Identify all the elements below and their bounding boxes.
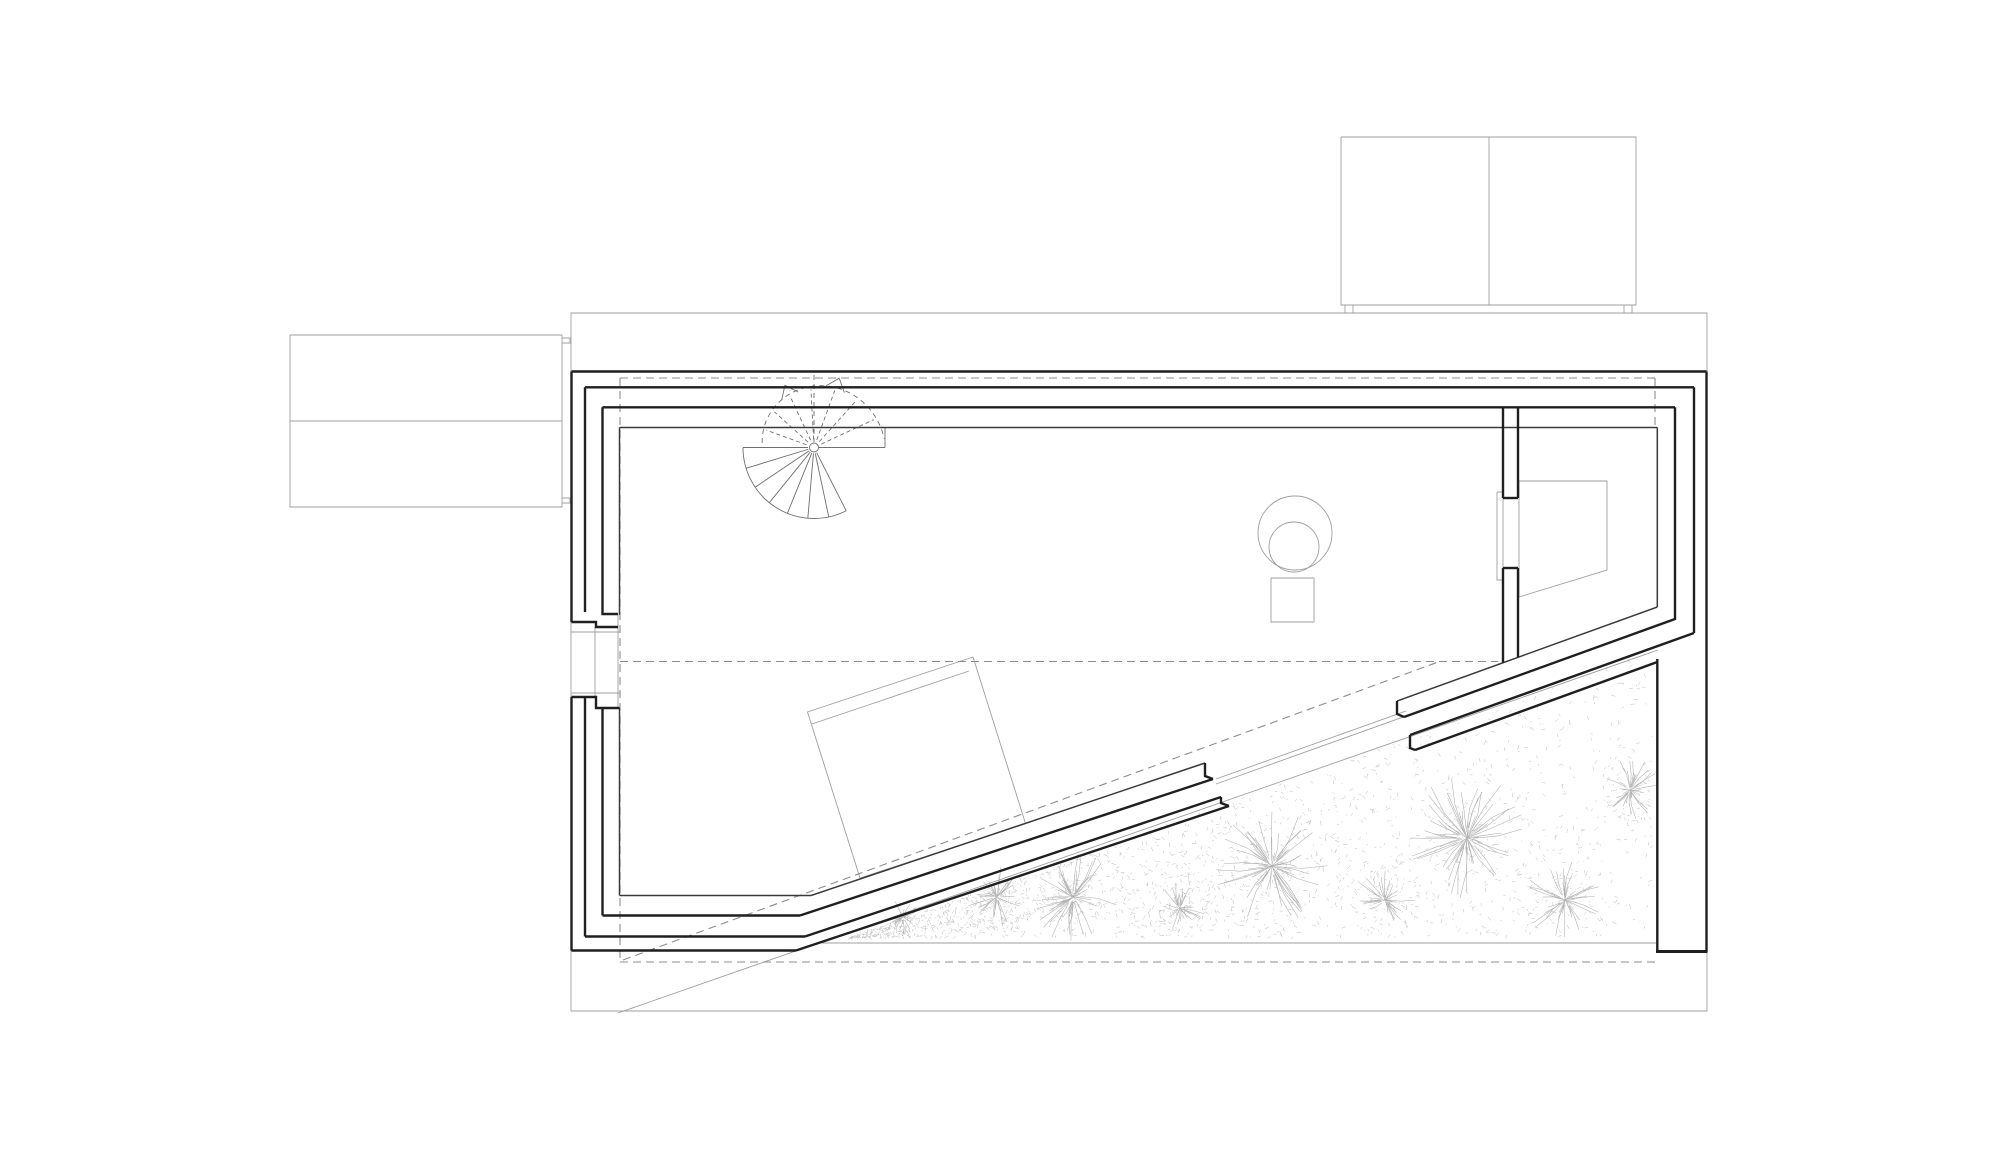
diagonal-wall-b-line3	[1404, 619, 1675, 717]
bed-platform-outline	[808, 657, 1026, 878]
stair-upper-flight-dashed-spiral	[762, 386, 884, 443]
floor-plan-page	[0, 0, 2000, 1150]
left-door-sill	[572, 697, 620, 708]
diagonal-wall-a-end-step1	[1205, 763, 1213, 779]
bed-platform-inner-edge	[812, 671, 969, 724]
left-door-head	[572, 622, 619, 627]
diagonal-wall-b-end-step1	[1397, 701, 1404, 717]
room-line-diagonal-b	[1397, 607, 1657, 701]
rooftop-box-outline	[1341, 137, 1636, 305]
glazing-line-2	[1216, 716, 1406, 784]
left-annex-foot-bottom	[562, 498, 570, 503]
diagonal-wall-b-line2	[1410, 633, 1694, 735]
garden-trees	[848, 660, 1657, 941]
left-annex-foot-top	[562, 338, 570, 343]
stove-hearth-square	[1271, 578, 1314, 622]
stair-tread-line	[787, 453, 811, 513]
partition-door-leaf	[1497, 492, 1503, 580]
floor-plan-canvas	[0, 0, 2000, 1150]
diagonal-wall-b-end-step2	[1410, 735, 1415, 750]
stove-body-circle	[1258, 496, 1332, 570]
stair-upper-tread-dashed	[821, 420, 873, 444]
tree-burst-4	[1164, 882, 1204, 928]
light-linework	[290, 137, 1707, 1013]
built-in-bench-outline	[1519, 481, 1607, 597]
diagonal-wall-a-line3	[800, 779, 1213, 916]
spiral-stair	[743, 375, 885, 519]
tree-burst-8	[1527, 862, 1598, 937]
stair-upper-tread-dashed	[790, 397, 810, 440]
stair-center-post	[810, 443, 819, 452]
stair-tread-line	[755, 451, 809, 487]
stair-tread-line	[808, 453, 814, 518]
stair-upper-tread-dashed	[817, 390, 835, 440]
left-wall-line3-upper	[603, 407, 619, 614]
room-line-diagonal-a	[811, 763, 1205, 896]
stair-upper-tread-dashed	[811, 389, 814, 439]
glazing-line-1	[1216, 711, 1406, 779]
stair-tread-arc	[743, 448, 846, 519]
tree-burst-9	[1606, 761, 1657, 819]
diagonal-wall-b-outer	[1415, 662, 1657, 750]
site-diagonal-line	[618, 650, 1658, 1013]
stair-upper-tread-dashed	[766, 430, 806, 445]
stove-flue-circle	[1269, 522, 1319, 572]
stair-direction-arrow	[826, 378, 844, 392]
